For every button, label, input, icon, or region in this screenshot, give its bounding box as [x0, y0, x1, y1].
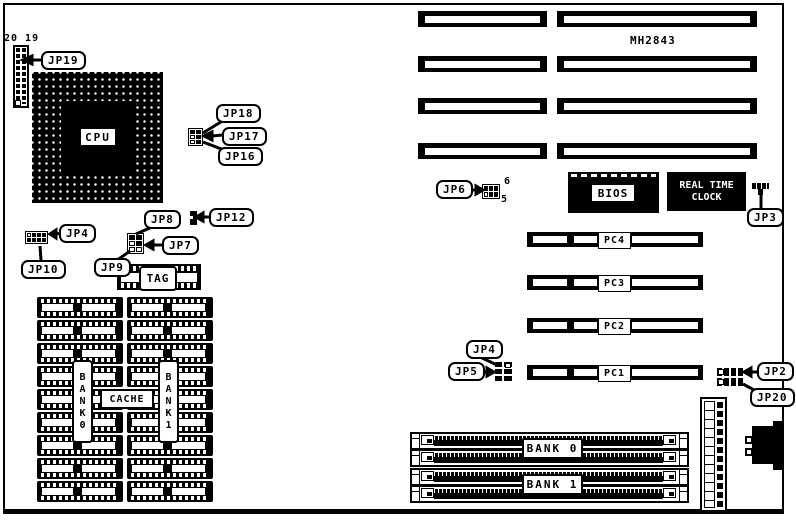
isa-slot	[418, 56, 547, 72]
bios-chip: BIOS	[568, 172, 659, 213]
pc3-slot: PC3	[527, 275, 703, 290]
isa-slot	[418, 98, 547, 114]
pc1-label: PC1	[598, 365, 631, 382]
callout-jp20: JP20	[750, 388, 795, 407]
callout-jp2: JP2	[757, 362, 794, 381]
jp19-connector	[13, 45, 29, 108]
cache-chip	[37, 320, 123, 341]
callout-jp12: JP12	[209, 208, 254, 227]
callout-jp6: JP6	[436, 180, 473, 199]
bios-label: BIOS	[592, 185, 634, 201]
jp5-header	[495, 362, 502, 383]
pc4-slot: PC4	[527, 232, 703, 247]
jp6-pin5-number: 5	[501, 194, 508, 205]
cache-chip	[37, 458, 123, 479]
real-time-clock-chip: REAL TIME CLOCK	[667, 172, 746, 211]
pc2-label: PC2	[598, 318, 631, 335]
cache-chip	[127, 297, 213, 318]
callout-jp16: JP16	[218, 147, 263, 166]
motherboard-diagram: 20 19 CPU MH2843 6 5 BIOS REAL TIME CLOC…	[0, 0, 796, 520]
keyboard-connector-pin	[745, 436, 753, 444]
cpu-socket: CPU	[32, 72, 163, 203]
jp3-jumper-stem	[758, 189, 763, 195]
callout-jp5: JP5	[448, 362, 485, 381]
cache-chip	[127, 458, 213, 479]
simm-bank1-label: BANK 1	[522, 474, 583, 495]
isa-slot	[557, 143, 757, 159]
cache-chip	[37, 297, 123, 318]
tag-label: TAG	[139, 266, 177, 291]
jp6-pin6-number: 6	[504, 176, 511, 187]
jp20-header	[717, 378, 744, 386]
keyboard-connector	[752, 426, 775, 464]
jp16-17-18-jumper-block	[188, 128, 203, 146]
callout-jp4-left: JP4	[59, 224, 96, 243]
jp19-pin-numbers: 20 19	[4, 33, 39, 44]
isa-slot	[418, 143, 547, 159]
simm-bank0-label: BANK 0	[522, 438, 583, 459]
callout-jp17: JP17	[222, 127, 267, 146]
isa-slot	[418, 11, 547, 27]
jp6-jumper-block	[482, 184, 500, 199]
callout-jp3: JP3	[747, 208, 784, 227]
bios-socket-notch	[571, 174, 656, 177]
jp12-jumper	[190, 211, 197, 225]
power-connector	[700, 397, 727, 512]
cache-chip	[37, 481, 123, 502]
callout-jp19: JP19	[41, 51, 86, 70]
pc3-label: PC3	[598, 275, 631, 292]
callout-jp7: JP7	[162, 236, 199, 255]
jp4-left-jumper-block	[25, 231, 48, 244]
cpu-label: CPU	[81, 129, 115, 145]
callout-jp10: JP10	[21, 260, 66, 279]
pc4-label: PC4	[598, 232, 631, 249]
rtc-label-line2: CLOCK	[691, 192, 721, 204]
callout-jp9: JP9	[94, 258, 131, 277]
cache-chip	[127, 320, 213, 341]
keyboard-connector-flange	[773, 421, 783, 470]
jp7-8-9-jumper-block	[127, 233, 144, 254]
jp4-right-header	[504, 362, 512, 383]
cache-chip	[127, 481, 213, 502]
pc2-slot: PC2	[527, 318, 703, 333]
isa-slot	[557, 56, 757, 72]
isa-slot	[557, 98, 757, 114]
isa-slot	[557, 11, 757, 27]
cache-bank0-label: BANK0	[72, 360, 93, 443]
cache-bank1-label: BANK1	[158, 360, 179, 443]
cache-label: CACHE	[100, 389, 154, 409]
callout-jp18: JP18	[216, 104, 261, 123]
pc1-slot: PC1	[527, 365, 703, 380]
keyboard-connector-pin	[745, 448, 753, 456]
callout-jp4-right: JP4	[466, 340, 503, 359]
jp19-pin20-open	[15, 100, 21, 106]
board-part-number: MH2843	[630, 34, 676, 47]
rtc-label-line1: REAL TIME	[679, 180, 733, 192]
callout-jp8: JP8	[144, 210, 181, 229]
jp2-header	[717, 368, 744, 376]
